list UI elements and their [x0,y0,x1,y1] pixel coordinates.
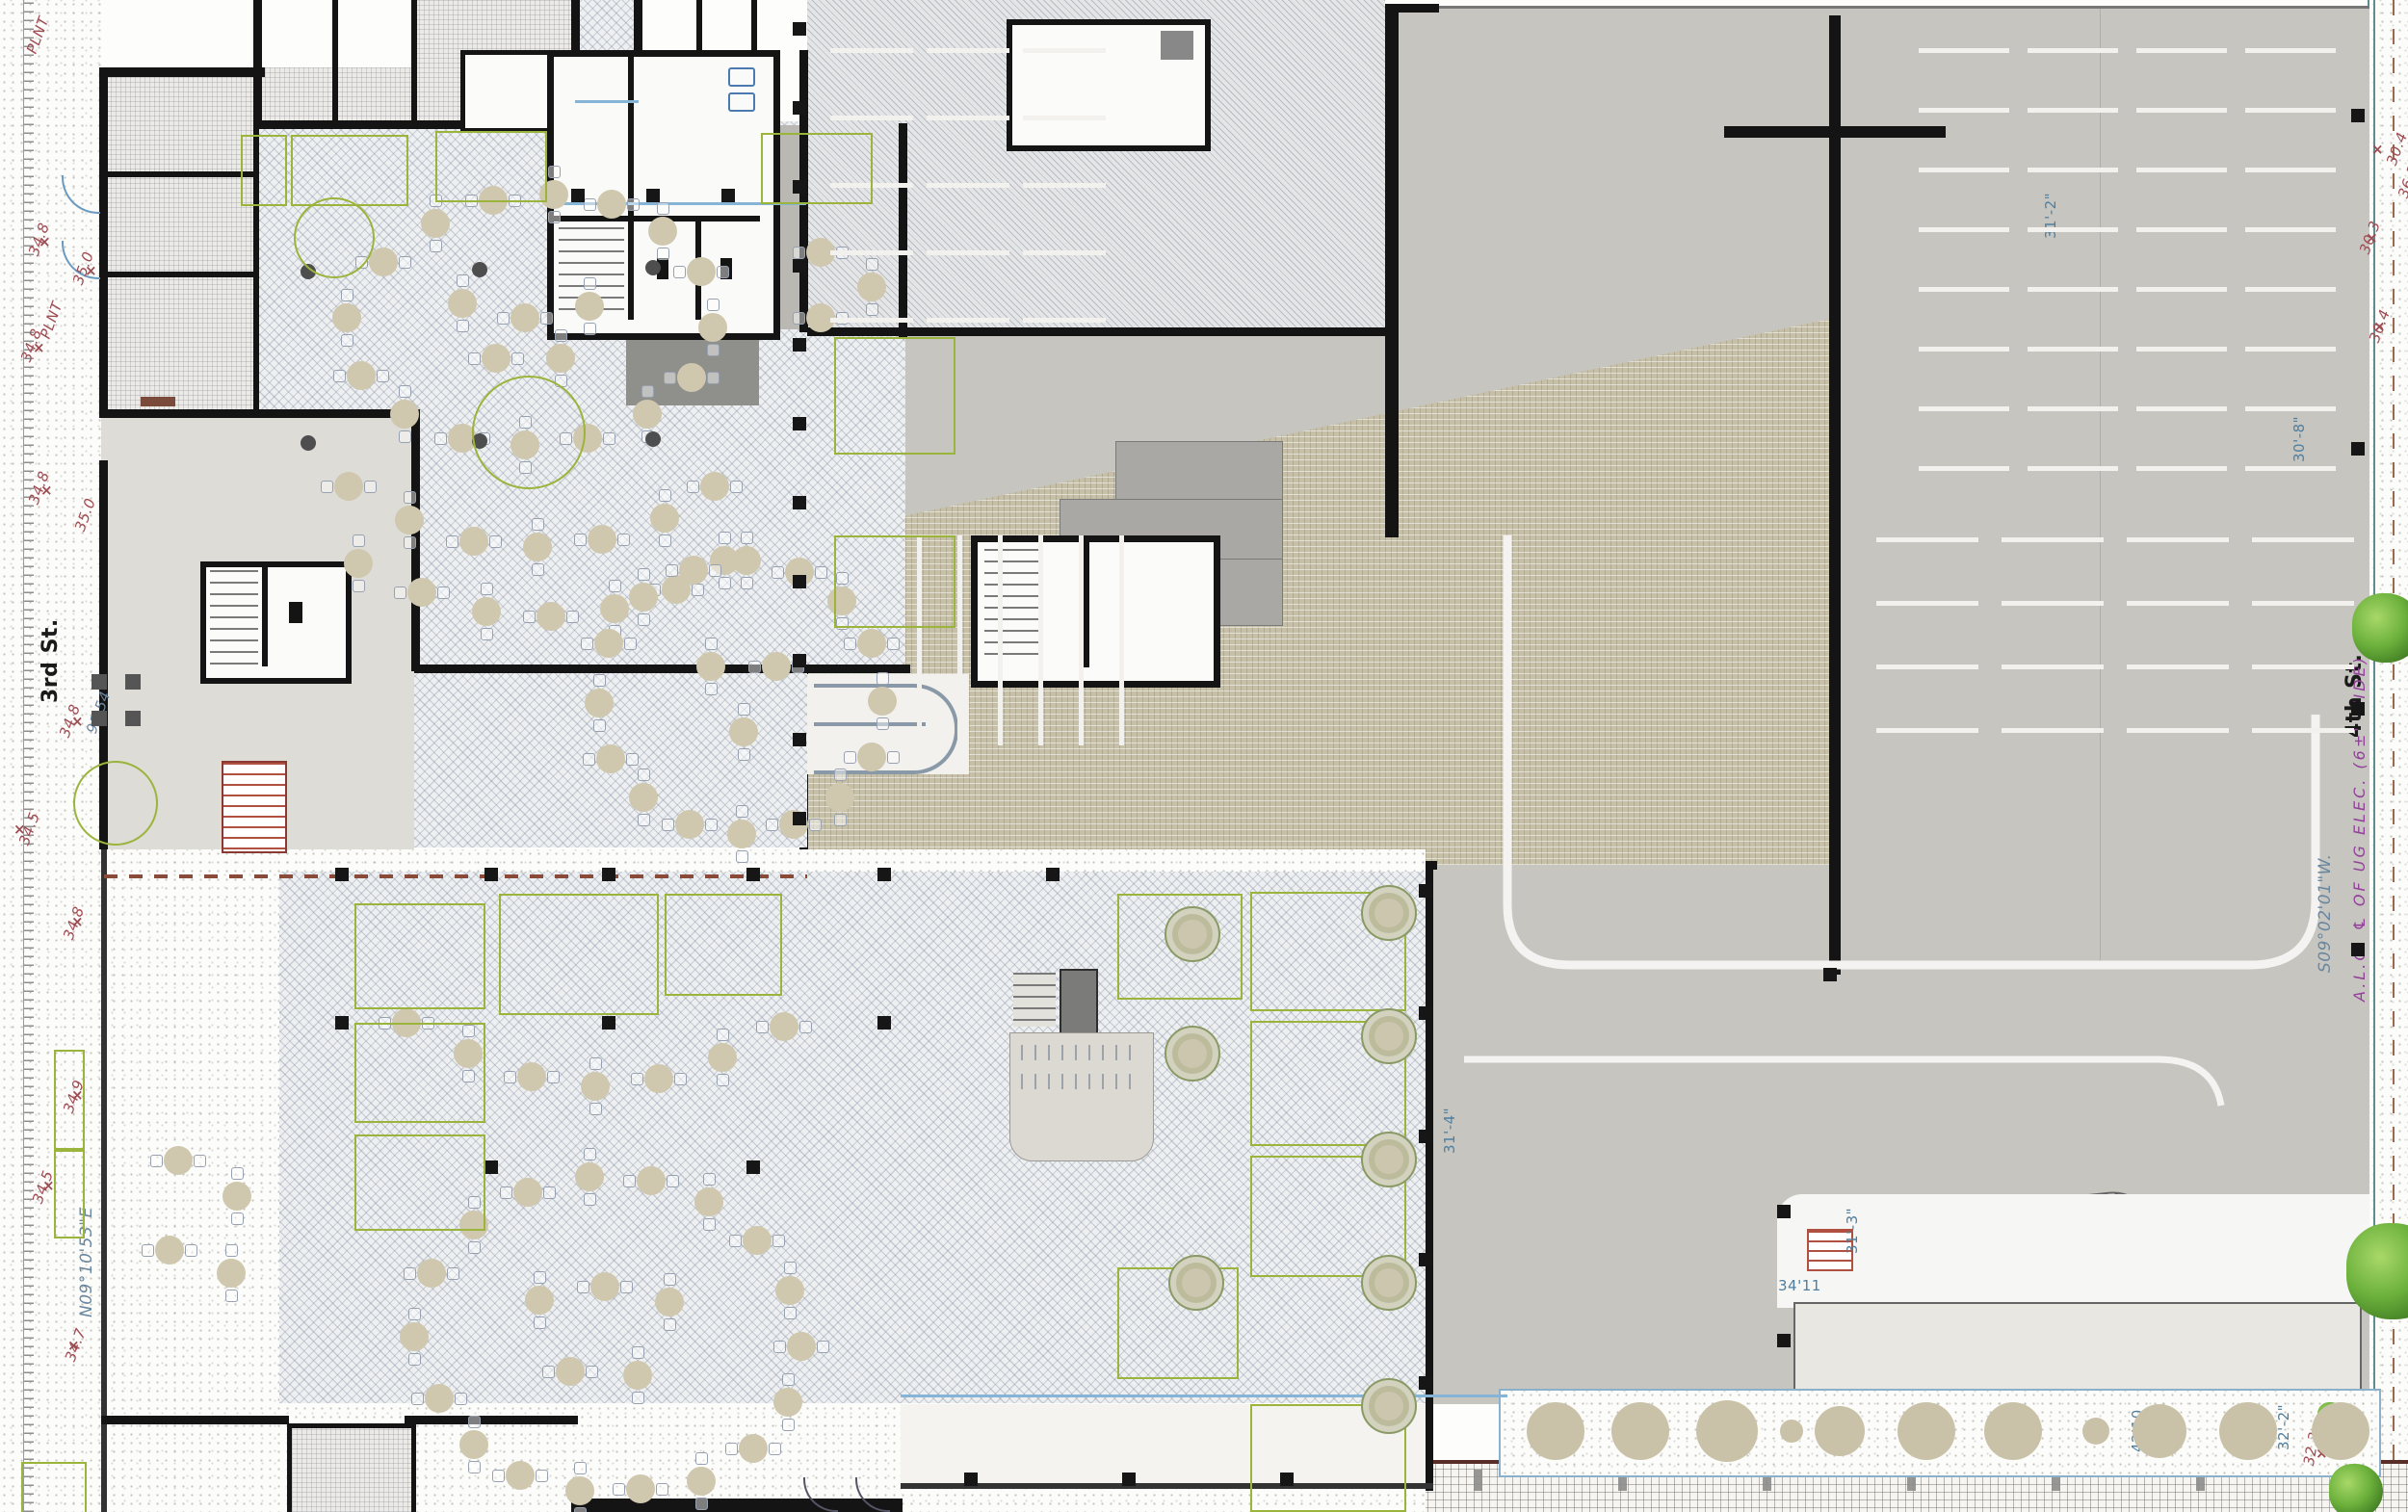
chair [500,1186,512,1199]
planter-tree [1898,1402,1955,1460]
dining-table [585,689,614,717]
dining-table [575,1162,604,1191]
parking-stall-line [1919,48,2009,53]
column [646,189,660,202]
chair [225,1244,238,1257]
column [335,868,349,881]
parking-stall-line [2127,537,2229,542]
parking-stall-line [2028,227,2118,232]
chair [584,1148,596,1160]
wall [99,409,420,418]
round-column [301,435,316,451]
dining-table [459,527,488,556]
parking-stall-line [2002,728,2104,733]
planter-tree [2219,1402,2277,1460]
stage-stair [1013,973,1056,1027]
planting-zone [435,131,547,202]
chair [457,320,469,332]
dining-table [762,652,791,681]
chair [574,1507,587,1512]
parking-stall-line [2245,48,2336,53]
dim-32-2: 32'-2" [2275,1404,2292,1450]
column [1777,1334,1791,1347]
parking-stall-line [1079,535,1084,745]
dining-table [523,533,552,561]
chair [532,518,544,531]
column [793,338,806,352]
chair [377,370,389,382]
parking-stall-line [957,535,962,745]
patio-table [125,674,141,690]
parking-stall-line [2252,728,2354,733]
patio-table [125,711,141,726]
planter-tree [2133,1404,2186,1458]
chair [577,1281,589,1293]
dining-table [525,1286,554,1315]
dining-table [513,1178,542,1207]
planter-tree [1527,1402,1584,1460]
dining-table [472,597,501,626]
survey-x-mark: × [42,1177,55,1194]
planting-zone [499,894,659,1015]
dining-table [537,602,565,631]
wall [634,0,642,54]
chair [468,1416,481,1428]
chair [738,703,750,716]
dining-table [694,1187,723,1216]
patio-table [92,674,107,690]
terrace-tree [1165,1026,1220,1082]
chair [603,432,615,445]
terrace-tree [1361,1378,1417,1434]
dining-table [868,687,897,716]
entry-glazing [575,100,639,103]
chair [627,198,640,211]
parking-stall-line [2136,168,2227,172]
chair [408,1308,421,1320]
stage-platform-ticks-1 [1021,1045,1137,1060]
column [1823,968,1837,981]
parking-stall-line [1876,728,1978,733]
wall [899,123,907,339]
column [2351,109,2365,122]
wall [101,1416,289,1424]
dining-table [517,1062,546,1091]
chair [657,202,669,215]
chair [692,584,704,596]
dining-table [155,1236,184,1264]
survey-x-mark: × [40,482,53,499]
lobby-core-stair [210,570,258,665]
chair [707,372,720,384]
dining-table [459,1430,488,1459]
wall [101,849,107,1512]
chair [638,814,650,826]
dining-table [687,257,716,286]
parking-stall-line [998,535,1003,745]
chair [809,819,822,831]
chair [468,1461,481,1473]
parking-stall-line [2127,728,2229,733]
column [793,101,806,115]
street-tree [2329,1464,2383,1512]
survey-x-mark: × [2366,229,2378,247]
chair [540,312,553,325]
parking-stall-line [927,48,1009,53]
column [1419,1253,1432,1266]
dining-table [825,783,854,812]
dining-table [597,190,626,219]
chair [589,1057,602,1070]
dining-table [773,1388,802,1417]
column [877,868,891,881]
dining-table [857,743,886,771]
chair [411,1393,424,1405]
chair [581,638,593,650]
dim-31-3: 31'-3" [1844,1208,1861,1254]
lobby-elevator-cab [289,602,302,623]
chair [399,430,411,443]
parking-stall-line [1919,466,2009,471]
chair [583,753,595,766]
survey-x-mark: × [13,821,26,838]
column [793,496,806,509]
chair [457,274,469,287]
parking-stall-line [1023,183,1106,188]
wall [696,0,702,53]
chair [741,577,753,589]
parking-stall-line [2245,347,2336,352]
chair [632,1392,644,1404]
chair [877,672,889,685]
chair [709,564,721,577]
chair [437,587,450,599]
wc-fixture-2 [728,92,755,112]
parking-stall-line [1919,108,2009,113]
column [1419,1130,1432,1143]
dining-table [395,506,424,534]
dining-table [655,1288,684,1316]
chair [555,329,567,342]
wall [253,0,262,127]
parking-stall-line [1023,250,1106,255]
dining-table [729,717,758,746]
wc-fixture-1 [728,67,755,87]
parking-stall-line [2002,665,2104,669]
chair [404,491,416,504]
chair [738,748,750,761]
parking-stall-line [2028,48,2118,53]
chair [468,352,481,365]
planting-zone [54,1050,85,1150]
column [2351,442,2365,456]
parking-stall-line [1876,537,1978,542]
chair [548,211,561,223]
dim-31-4: 31'-4" [1441,1108,1458,1154]
chair [766,819,778,831]
chair [815,566,827,579]
chair [887,638,900,650]
survey-x-mark: × [2373,318,2386,335]
parking-stall-line [1023,318,1106,323]
chair [584,277,596,290]
column [484,1160,498,1174]
parking-stall-line [2002,601,2104,606]
parking-stall-line [2136,466,2227,471]
chair [481,583,493,595]
survey-x-mark: × [33,339,45,356]
planter-tree [1780,1420,1803,1443]
survey-x-mark: × [85,262,97,279]
garage-core-stair [984,549,1042,661]
chair [673,266,686,278]
wall [405,1416,578,1424]
chair [626,753,639,766]
column [1046,868,1060,881]
planting-zone [354,1023,485,1123]
chair [321,481,333,493]
column [721,189,735,202]
parking-stall-line [2028,287,2118,292]
chair [492,1470,505,1482]
column [877,1016,891,1030]
dock-apron [1777,1194,2369,1308]
round-column [645,260,661,275]
survey-x-mark: × [71,913,84,930]
dining-table [633,400,662,429]
dining-table [687,1467,716,1496]
dining-table [732,546,761,575]
chair [667,1175,679,1187]
column [793,812,806,825]
chair [736,805,748,818]
parking-stall-line [1919,347,2009,352]
dining-table [334,472,363,501]
dining-table [594,629,623,658]
dining-table [588,525,616,554]
chair [225,1290,238,1302]
column [1419,1006,1432,1020]
chair [638,613,650,626]
chair [736,850,748,863]
chair [468,1241,481,1254]
parking-stall-line [927,250,1009,255]
dining-table [600,594,629,623]
parking-stall-line [2136,287,2227,292]
column [2351,702,2365,716]
chair [705,819,718,831]
column [335,1016,349,1030]
planting-zone [834,337,955,455]
dining-table [448,289,477,318]
chair [586,1366,598,1378]
parking-stall-line [927,116,1009,120]
parking-stall-line [1919,168,2009,172]
chair [866,258,878,271]
chair [620,1281,633,1293]
parking-stall-line [1919,227,2009,232]
chair [773,1341,786,1353]
south-vestibule [287,1423,416,1512]
parking-stall-line [1023,48,1106,53]
column [571,189,585,202]
chair [142,1244,154,1257]
parking-stall-line [2127,665,2229,669]
survey-x-mark: × [39,233,51,250]
wall [751,0,757,53]
chair [659,489,671,502]
column [1777,1205,1791,1218]
dining-table [590,1272,619,1301]
chair [574,534,587,546]
chair [566,611,579,623]
wall [414,665,910,673]
chair [194,1155,206,1167]
wall [99,67,265,77]
dining-table [648,217,677,246]
garage-ramp-step-1 [1115,441,1283,501]
chair [446,535,458,548]
terrace-tree [1361,1008,1417,1064]
parking-stall-line [2028,406,2118,411]
dining-table [390,400,419,429]
dining-table [743,1226,772,1255]
chair [695,1498,708,1510]
planter-tree [2312,1402,2369,1460]
chair [703,1218,716,1231]
column [1122,1473,1136,1486]
chair [631,1073,643,1085]
dining-table [623,1361,652,1390]
parking-stall-line [2002,537,2104,542]
wall [101,171,253,177]
dining-table [679,556,708,585]
chair [717,1074,729,1086]
round-column [472,262,487,277]
chair [497,312,510,325]
chair [511,352,524,365]
chair [641,385,654,398]
chair [705,683,718,695]
chair [834,769,847,781]
parking-stall-line [1023,116,1106,120]
column [793,575,806,588]
dining-table [698,313,727,342]
terrace-tree [1165,906,1220,962]
dining-table [581,1072,610,1101]
parking-stall-line [2136,347,2227,352]
parking-stall-line [2245,406,2336,411]
survey-x-mark: × [67,1337,80,1354]
chair [333,370,346,382]
northeast-room-closet [1161,31,1193,60]
chair [574,1462,587,1474]
stage-platform-ticks-2 [1021,1074,1137,1089]
chair [408,1353,421,1366]
column [793,259,806,273]
parking-stall-line [2028,168,2118,172]
chair [844,638,856,650]
parking-stall-line [2245,108,2336,113]
chair [782,1373,795,1386]
chair [455,1393,467,1405]
chair [481,628,493,640]
chair [741,532,753,544]
parking-stall-line [1919,406,2009,411]
parking-stall-line [1038,535,1043,745]
chair [489,535,502,548]
chair [185,1244,197,1257]
chair [609,580,621,592]
parking-stall-line [2136,48,2227,53]
dining-table [482,344,510,373]
stage-kiosk [1060,969,1098,1036]
chair [542,1366,555,1378]
lobby-stair-red [222,761,287,853]
dining-table [700,472,729,501]
planting-zone [761,133,873,204]
parking-stall-line [1876,601,1978,606]
chair [664,1318,676,1331]
dining-table [739,1434,768,1463]
parking-stall-line [2245,466,2336,471]
chair [756,1021,769,1033]
site-plan-canvas: 3rd St. 4th St. A.L.O. ℄ OF UG ELEC. (6±… [0,0,2408,1512]
chair [543,1186,556,1199]
survey-x-mark: × [71,713,84,730]
terrace-tree [1361,1132,1417,1187]
dining-table [637,1166,666,1195]
parking-stall-line [927,318,1009,323]
dining-table [347,361,376,390]
chair [584,1193,596,1206]
chair [784,1262,797,1274]
terrace-tree [1361,885,1417,941]
chair [725,1443,738,1455]
dining-table [164,1146,193,1175]
dining-table [506,1461,535,1490]
chair [617,534,630,546]
terrace-north-dashed-line [104,874,807,878]
dining-table [626,1474,655,1503]
chair [705,638,718,650]
dining-table [775,1276,804,1305]
chair [364,481,377,493]
terrace-tree [1168,1255,1224,1311]
column [746,1160,760,1174]
chair [548,166,561,178]
chair [674,1073,687,1085]
dining-table [650,504,679,533]
wall [332,0,338,120]
dining-table [222,1182,251,1211]
parking-stall-line [2136,406,2227,411]
chair [887,751,900,764]
dining-table [407,578,436,607]
planting-circle [294,197,375,278]
parking-stall-line [830,48,913,53]
chair [613,1483,625,1496]
wall [101,272,253,277]
chair [772,566,784,579]
column [602,868,615,881]
chair [717,266,729,278]
chair [664,1273,676,1286]
storefront-glazing-south [901,1395,1507,1397]
chair [399,385,411,398]
parking-stall-line [2136,227,2227,232]
parking-stall-line [2252,601,2354,606]
